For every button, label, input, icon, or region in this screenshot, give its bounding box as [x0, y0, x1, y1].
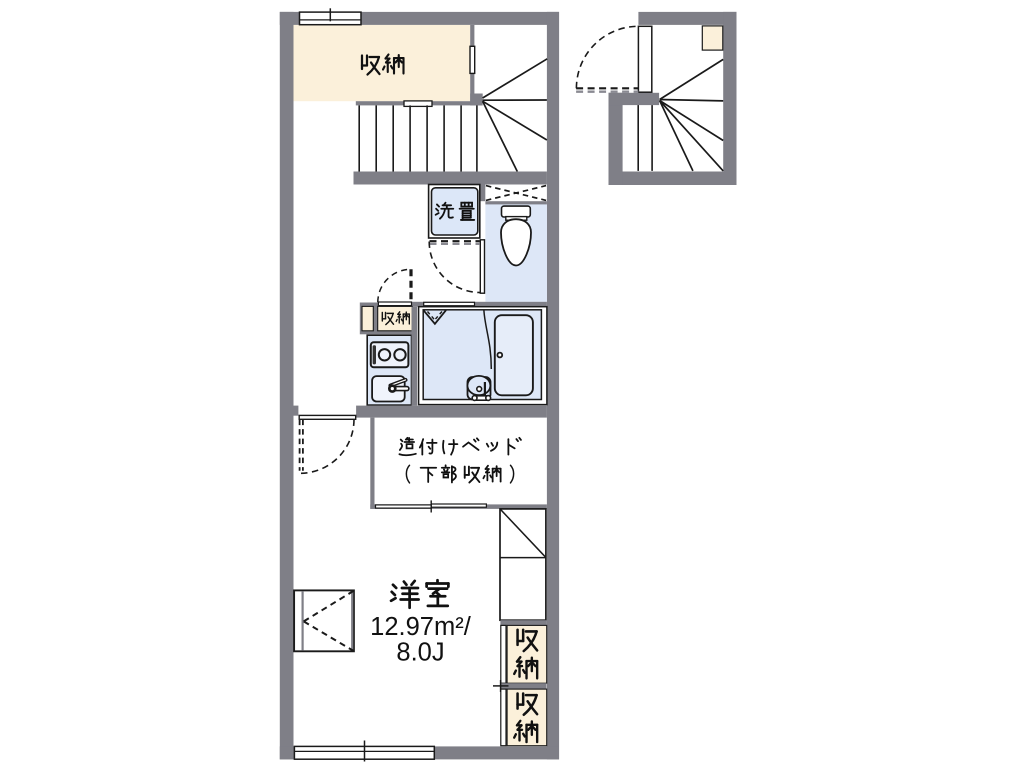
svg-text:8.0J: 8.0J [396, 639, 444, 667]
svg-text:12.97m²/: 12.97m²/ [370, 613, 472, 641]
